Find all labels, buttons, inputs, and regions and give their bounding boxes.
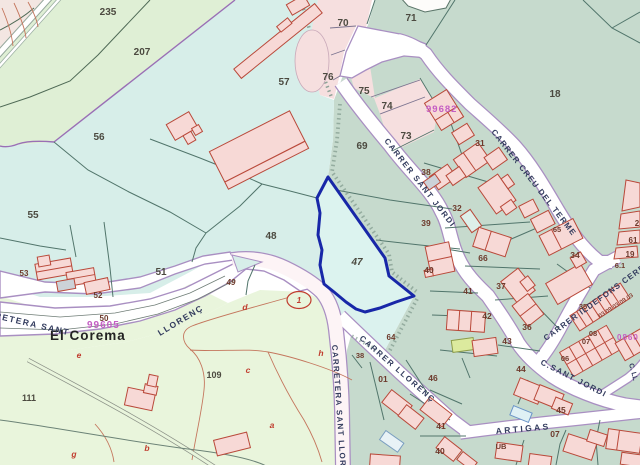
svg-text:56: 56 [93, 132, 105, 143]
svg-text:g: g [70, 449, 77, 459]
svg-text:48: 48 [265, 231, 277, 242]
svg-text:45: 45 [556, 405, 566, 415]
svg-text:31: 31 [475, 138, 485, 148]
svg-text:99682: 99682 [426, 104, 457, 115]
svg-text:57: 57 [278, 77, 290, 88]
svg-text:49: 49 [226, 278, 236, 287]
svg-text:e: e [77, 350, 82, 360]
svg-text:41: 41 [463, 286, 473, 296]
svg-text:41: 41 [436, 421, 446, 431]
svg-text:h: h [318, 348, 323, 358]
svg-text:75: 75 [358, 86, 370, 97]
svg-text:37: 37 [496, 281, 506, 291]
svg-text:55: 55 [27, 210, 39, 221]
svg-text:51: 51 [155, 267, 167, 278]
svg-text:64: 64 [387, 333, 396, 342]
svg-text:UB: UB [496, 442, 507, 451]
svg-text:06: 06 [561, 354, 569, 363]
svg-text:a: a [270, 420, 275, 430]
svg-text:42: 42 [482, 311, 492, 321]
svg-text:40: 40 [435, 446, 445, 456]
svg-text:01: 01 [378, 374, 388, 384]
svg-text:69: 69 [356, 141, 368, 152]
svg-text:74: 74 [381, 101, 393, 112]
svg-text:207: 207 [134, 47, 151, 58]
svg-text:32: 32 [452, 203, 462, 213]
svg-text:61: 61 [629, 236, 638, 245]
svg-text:65: 65 [553, 225, 561, 234]
svg-text:38: 38 [421, 167, 431, 177]
svg-text:38: 38 [356, 351, 364, 360]
svg-text:46: 46 [428, 373, 438, 383]
svg-text:18: 18 [549, 89, 561, 100]
svg-text:43: 43 [502, 336, 512, 346]
svg-text:36: 36 [522, 322, 532, 332]
svg-text:52: 52 [94, 291, 103, 300]
svg-text:235: 235 [100, 7, 117, 18]
svg-text:76: 76 [322, 72, 334, 83]
svg-text:b: b [144, 443, 149, 453]
svg-text:d: d [242, 302, 248, 312]
svg-text:34: 34 [570, 250, 580, 260]
svg-text:39: 39 [421, 218, 431, 228]
svg-text:c: c [246, 365, 251, 375]
svg-text:07: 07 [550, 429, 560, 439]
svg-text:0860: 0860 [617, 333, 639, 342]
svg-text:2: 2 [635, 219, 640, 228]
svg-text:111: 111 [22, 393, 36, 403]
svg-text:53: 53 [20, 269, 29, 278]
svg-text:6.1: 6.1 [615, 261, 625, 270]
svg-text:71: 71 [405, 13, 417, 24]
svg-text:08: 08 [589, 329, 597, 338]
svg-text:1: 1 [297, 296, 302, 305]
svg-text:44: 44 [516, 364, 526, 374]
svg-text:73: 73 [400, 131, 412, 142]
svg-text:66: 66 [478, 253, 488, 263]
svg-text:40: 40 [424, 265, 434, 275]
svg-text:19: 19 [626, 250, 635, 259]
svg-text:07: 07 [582, 337, 590, 346]
svg-text:47: 47 [350, 257, 363, 268]
svg-text:70: 70 [337, 18, 349, 29]
svg-text:109: 109 [206, 370, 221, 380]
